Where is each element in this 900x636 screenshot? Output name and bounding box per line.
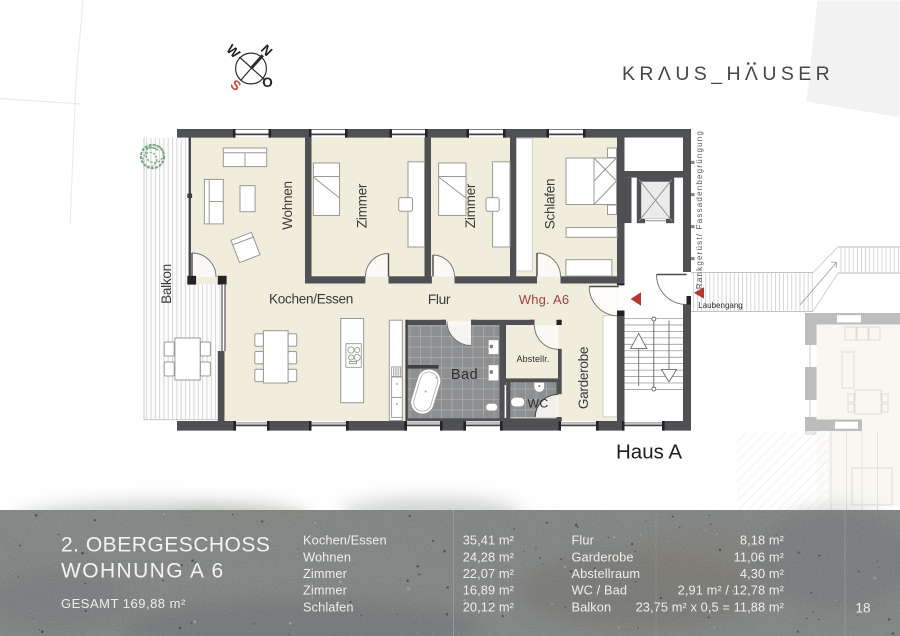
svg-text:O: O (262, 75, 273, 90)
svg-text:22,07 m²: 22,07 m² (463, 566, 515, 581)
svg-text:4,30 m²: 4,30 m² (740, 566, 785, 581)
svg-text:Bad: Bad (451, 367, 478, 383)
svg-text:Garderobe: Garderobe (572, 549, 634, 564)
svg-text:Whg. A6: Whg. A6 (519, 292, 570, 307)
svg-text:Balkon: Balkon (159, 264, 174, 304)
svg-text:Schlafen: Schlafen (303, 599, 354, 614)
svg-text:18: 18 (855, 601, 870, 616)
svg-text:Laubengang: Laubengang (698, 301, 743, 310)
svg-text:WC / Bad: WC / Bad (572, 583, 628, 598)
svg-text:Kochen/Essen: Kochen/Essen (303, 533, 387, 548)
svg-text:Flur: Flur (428, 292, 451, 307)
svg-text:KRΛUS_HΛUSER: KRΛUS_HΛUSER (622, 63, 834, 85)
svg-text:Zimmer: Zimmer (355, 183, 370, 228)
svg-text:20,12 m²: 20,12 m² (463, 599, 515, 614)
svg-text:Rankgerüst/ Fassadenbegrüngung: Rankgerüst/ Fassadenbegrüngung (695, 130, 704, 289)
svg-text:Abstellr.: Abstellr. (517, 354, 550, 364)
svg-text:Balkon: Balkon (572, 599, 612, 614)
svg-text:11,06 m²: 11,06 m² (734, 549, 785, 564)
svg-text:16,89 m²: 16,89 m² (463, 583, 515, 598)
svg-text:Zimmer: Zimmer (303, 583, 348, 598)
svg-text:Zimmer: Zimmer (463, 183, 478, 228)
svg-text:Abstellraum: Abstellraum (572, 566, 641, 581)
svg-text:WOHNUNG A 6: WOHNUNG A 6 (61, 560, 225, 583)
svg-text:Flur: Flur (572, 533, 595, 548)
svg-text:GESAMT 169,88 m²: GESAMT 169,88 m² (61, 596, 186, 611)
svg-text:24,28 m²: 24,28 m² (463, 549, 515, 564)
svg-text:Wohnen: Wohnen (280, 181, 295, 230)
svg-text:8,18 m²: 8,18 m² (740, 533, 785, 548)
svg-text:WC: WC (527, 397, 548, 411)
svg-text:2. OBERGESCHOSS: 2. OBERGESCHOSS (61, 534, 270, 557)
svg-text:Schlafen: Schlafen (543, 179, 558, 230)
svg-text:Zimmer: Zimmer (303, 566, 348, 581)
svg-text:Wohnen: Wohnen (303, 549, 351, 564)
svg-text:Garderobe: Garderobe (576, 347, 591, 409)
svg-text:Kochen/Essen: Kochen/Essen (269, 292, 353, 307)
svg-text:2,91 m² / 12,78 m²: 2,91 m² / 12,78 m² (678, 583, 785, 598)
svg-text:23,75 m² x 0,5 = 11,88 m²: 23,75 m² x 0,5 = 11,88 m² (636, 599, 785, 614)
svg-text:Haus A: Haus A (616, 441, 682, 464)
svg-text:35,41 m²: 35,41 m² (463, 533, 515, 548)
